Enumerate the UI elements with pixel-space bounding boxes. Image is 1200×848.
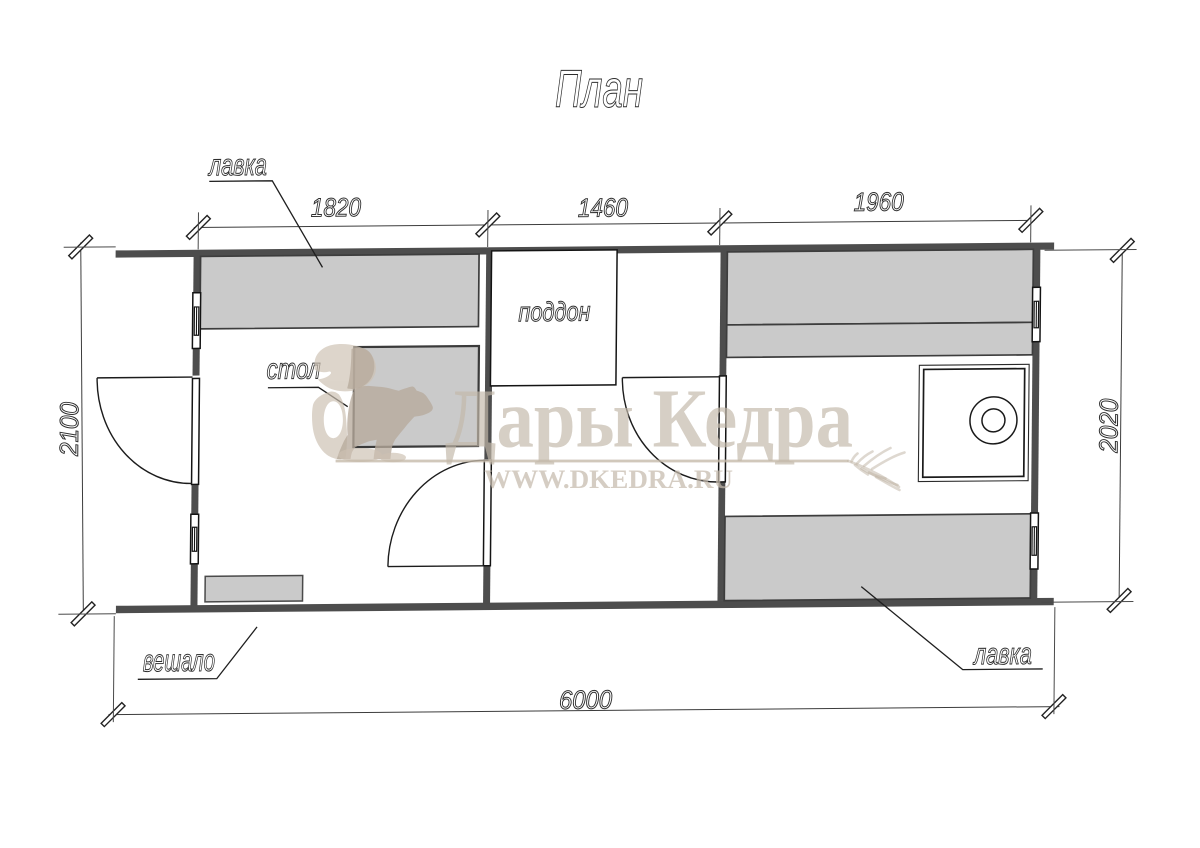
svg-text:2020: 2020 bbox=[1093, 398, 1123, 454]
svg-text:лавка: лавка bbox=[207, 149, 267, 183]
svg-text:1820: 1820 bbox=[311, 192, 362, 222]
svg-text:вешало: вешало bbox=[143, 643, 215, 679]
svg-text:поддон: поддон bbox=[518, 297, 590, 328]
svg-text:2100: 2100 bbox=[54, 401, 84, 457]
svg-text:1460: 1460 bbox=[578, 192, 629, 222]
svg-text:План: План bbox=[555, 60, 643, 119]
svg-text:WWW.DKEDRA.RU: WWW.DKEDRA.RU bbox=[484, 465, 733, 494]
svg-text:1960: 1960 bbox=[854, 186, 905, 216]
svg-text:лавка: лавка bbox=[972, 638, 1032, 672]
svg-text:Дары Кедра: Дары Кедра bbox=[445, 373, 853, 466]
svg-text:6000: 6000 bbox=[559, 684, 613, 714]
svg-text:стол: стол bbox=[266, 353, 320, 385]
